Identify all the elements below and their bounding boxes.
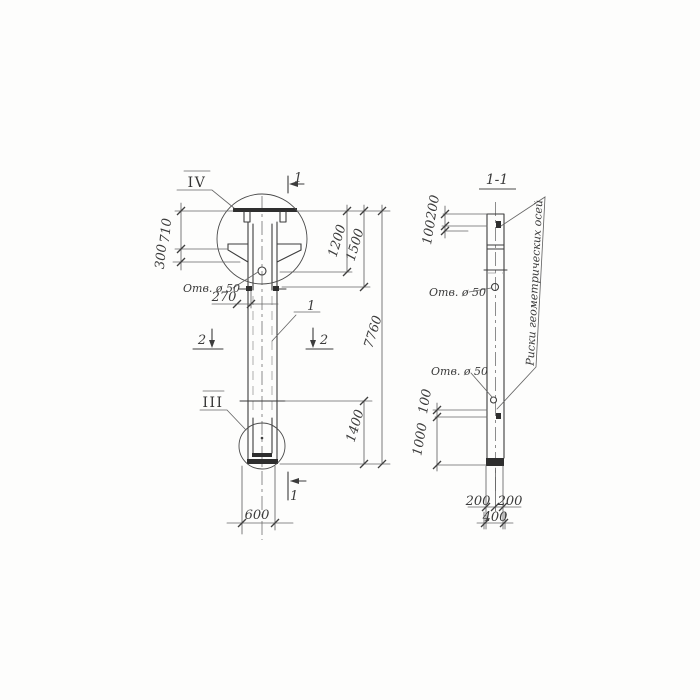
section-hole-note-bottom: Отв. ø 50 — [431, 365, 492, 397]
dim-100-bottom: 100 — [416, 388, 435, 415]
dim-270: 270 — [211, 290, 237, 305]
center-dot — [261, 437, 264, 440]
axes-note-label: Риски геометрических осей — [524, 200, 546, 367]
dim-200-left: 200 — [465, 494, 491, 509]
dim-710: 710 — [158, 218, 176, 244]
section-hole-note-top: Отв. ø 50 — [429, 286, 491, 299]
section-hole-top — [492, 284, 499, 291]
dim-1000: 1000 — [410, 422, 431, 457]
section-hole-bottom — [491, 397, 497, 403]
dim-200-top: 200 — [424, 194, 443, 222]
inner-wall-hidden — [253, 296, 272, 414]
dim-400: 400 — [482, 510, 508, 525]
cut2-left-label: 2 — [197, 333, 206, 348]
inner-wall-solid — [253, 224, 272, 453]
section-riska-top — [496, 221, 501, 228]
detail-bottom-label: III — [202, 395, 223, 411]
head-collar — [244, 212, 286, 222]
shaft-outline — [248, 222, 277, 460]
detail-top-label: IV — [188, 175, 207, 191]
cut-marker-1-top: 1 — [288, 171, 304, 193]
inner-bottom — [252, 453, 272, 457]
dim-600: 600 — [245, 508, 270, 523]
wing-brackets — [228, 244, 301, 262]
front-view: IV III 1 1 2 2 1 — [153, 171, 390, 540]
cut1-bottom-label: 1 — [290, 489, 298, 504]
section-title: 1-1 — [486, 172, 509, 188]
dim-300: 300 — [153, 244, 171, 270]
cut2-right-label: 2 — [319, 333, 328, 348]
section-hole-top-label: Отв. ø 50 — [429, 286, 486, 299]
section-bottom-fill — [486, 458, 504, 466]
drawing-canvas: IV III 1 1 2 2 1 — [0, 0, 700, 700]
section-riska-bottom — [496, 413, 501, 419]
section-hole-bottom-label: Отв. ø 50 — [431, 365, 488, 378]
riska-mark-left — [246, 286, 252, 291]
section-view: 1-1 Риски геометрических осей Отв. ø 50 — [410, 172, 545, 529]
part-ref-label: 1 — [307, 299, 315, 314]
cut-marker-1-bottom: 1 — [288, 472, 306, 504]
cut1-top-label: 1 — [294, 171, 302, 186]
column-body — [228, 208, 301, 464]
column-drawing: IV III 1 1 2 2 1 — [0, 0, 700, 700]
dim-100-top: 100 — [420, 219, 439, 246]
top-plate — [233, 208, 297, 212]
cut-marker-2-right: 2 — [306, 328, 333, 349]
riska-mark-right — [273, 286, 279, 291]
outer-bottom — [247, 459, 278, 464]
detail-label-IV: IV — [177, 171, 234, 208]
cut-marker-2-left: 2 — [193, 329, 223, 349]
dim-200-right: 200 — [497, 494, 523, 509]
detail-label-III: III — [200, 391, 246, 430]
